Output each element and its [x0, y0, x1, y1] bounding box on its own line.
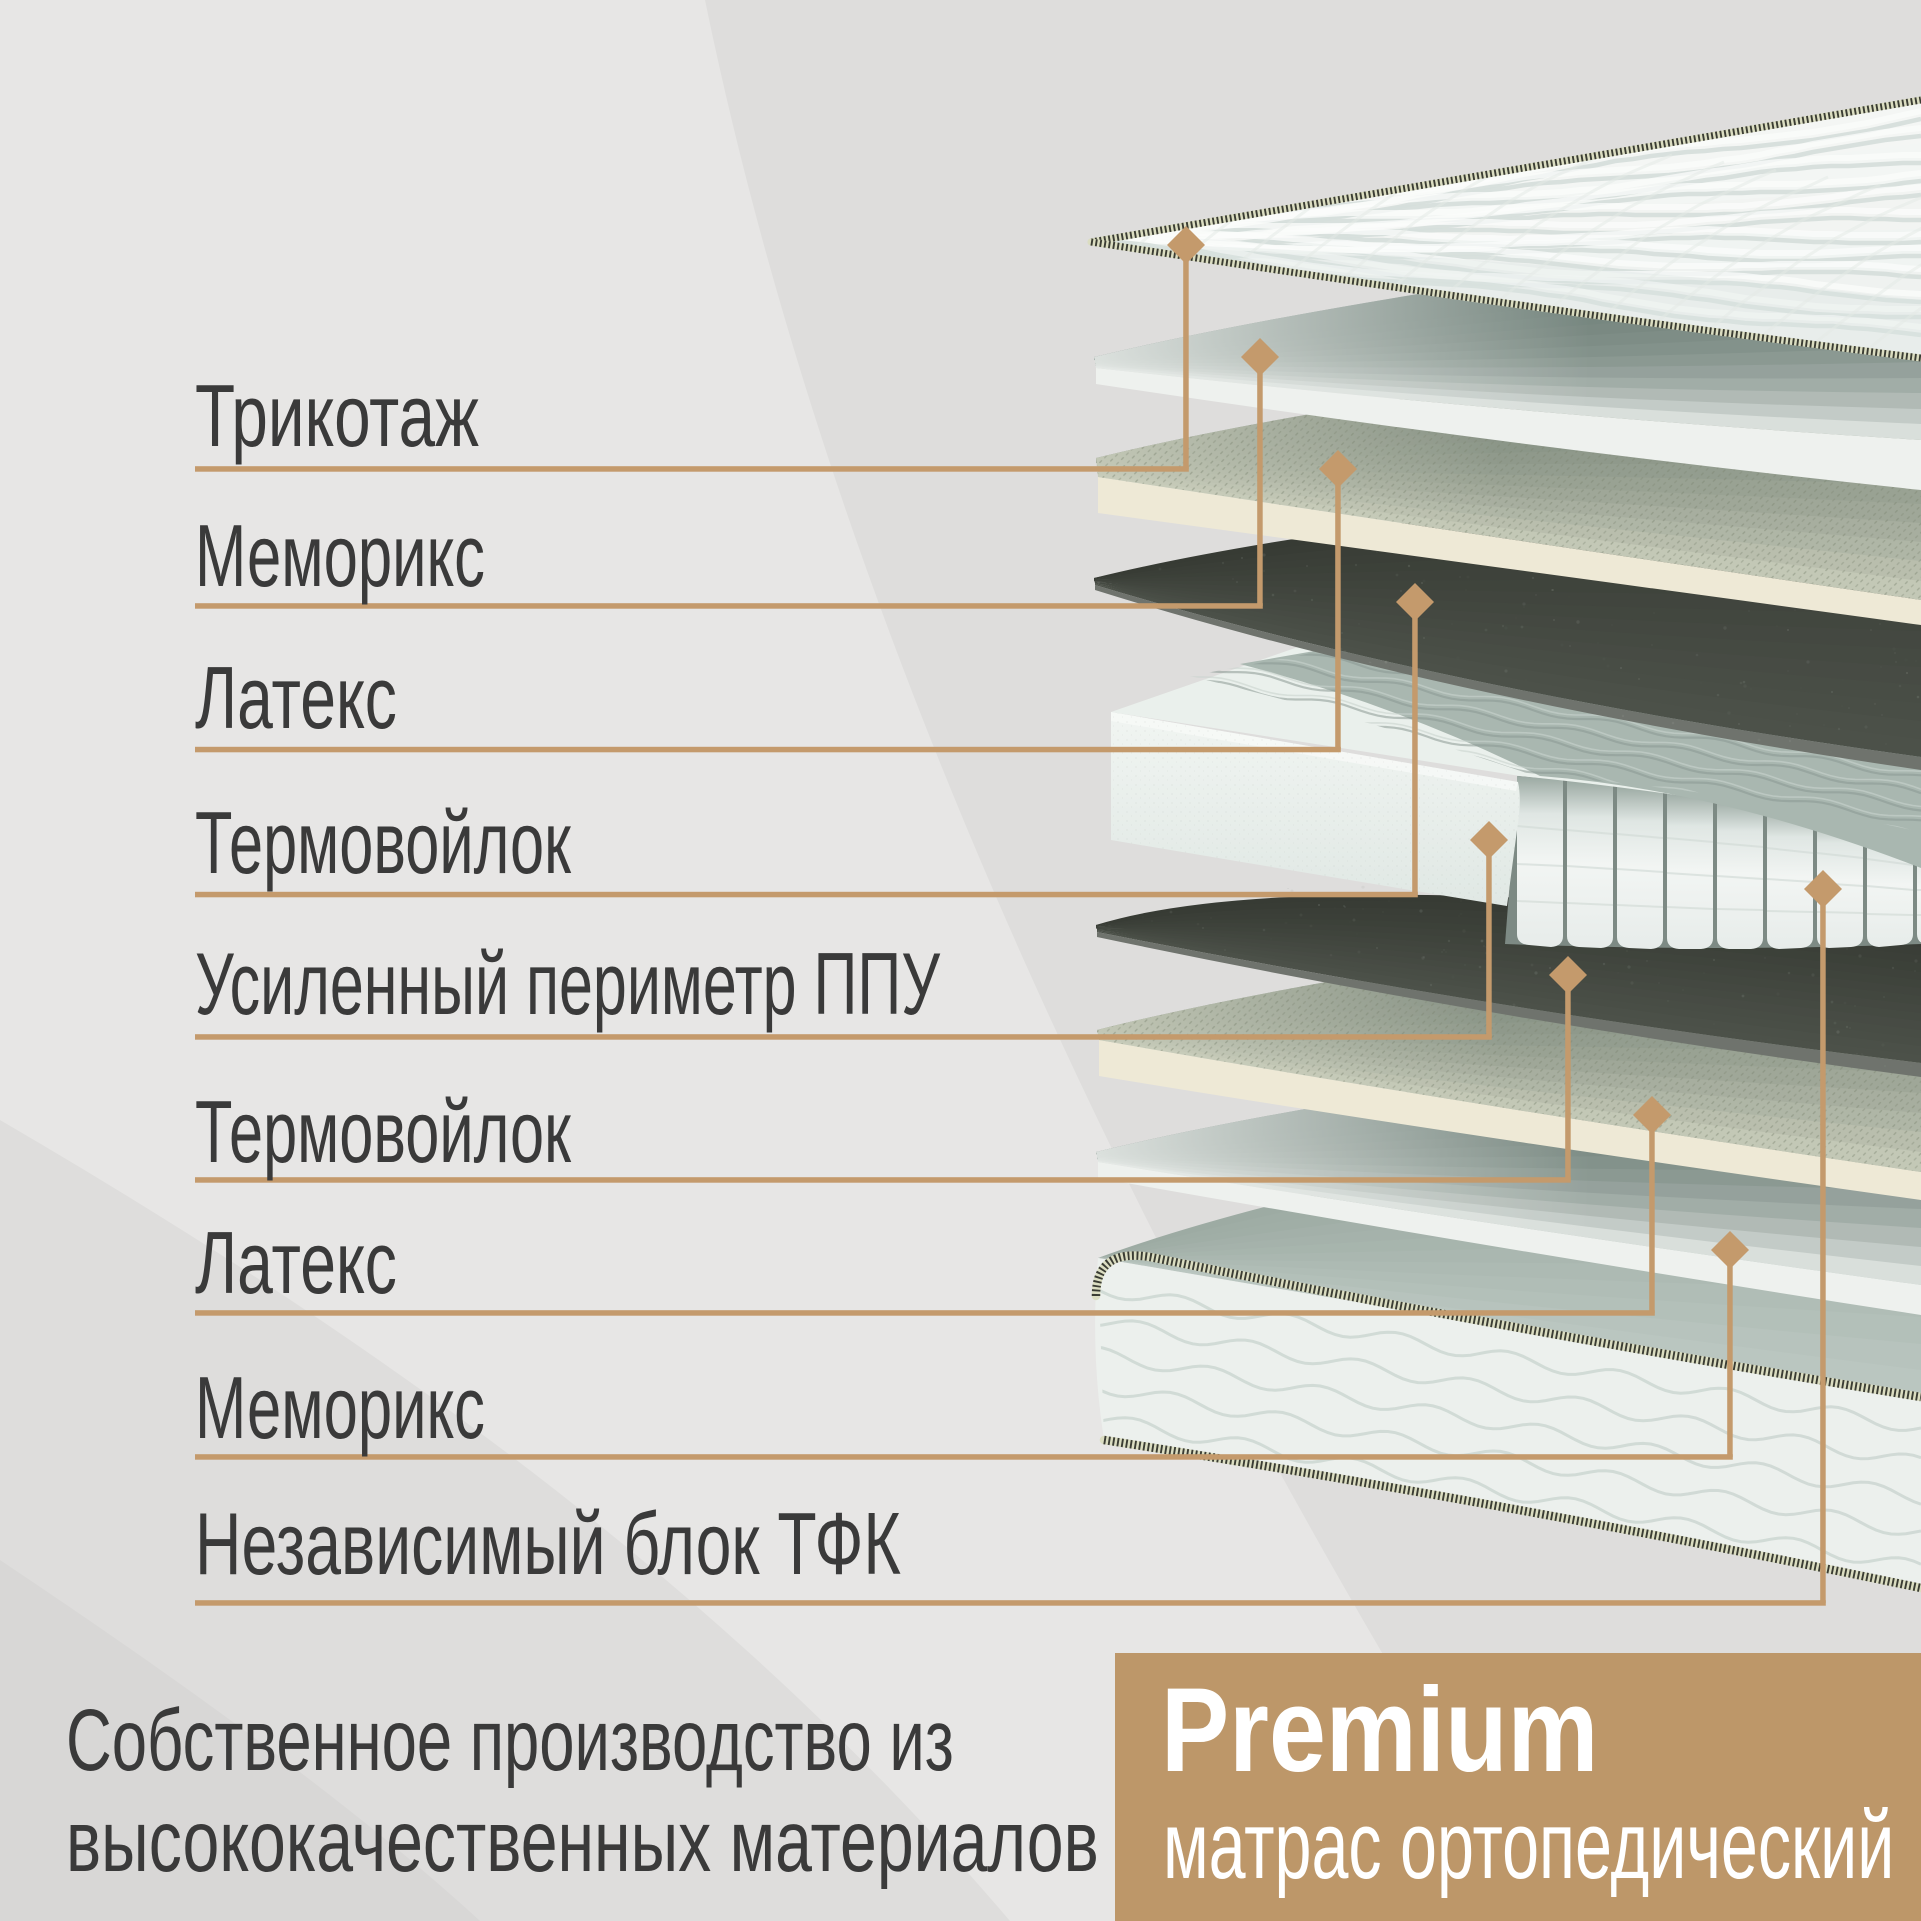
svg-text:Усиленный периметр ППУ: Усиленный периметр ППУ — [195, 935, 941, 1034]
svg-text:Трикотаж: Трикотаж — [195, 368, 479, 465]
svg-text:Термовойлок: Термовойлок — [195, 794, 572, 893]
svg-text:Латекс: Латекс — [195, 1214, 397, 1312]
svg-text:Premium: Premium — [1161, 1662, 1598, 1797]
svg-text:Независимый блок ТФК: Независимый блок ТФК — [195, 1495, 901, 1593]
svg-text:высококачественных материалов: высококачественных материалов — [66, 1793, 1099, 1890]
svg-text:матрас ортопедический: матрас ортопедический — [1163, 1792, 1894, 1899]
svg-text:Меморикс: Меморикс — [195, 1359, 485, 1457]
svg-text:Латекс: Латекс — [195, 649, 397, 747]
svg-text:Меморикс: Меморикс — [195, 507, 485, 605]
svg-text:Термовойлок: Термовойлок — [195, 1083, 572, 1182]
svg-text:Собственное производство из: Собственное производство из — [66, 1692, 954, 1789]
